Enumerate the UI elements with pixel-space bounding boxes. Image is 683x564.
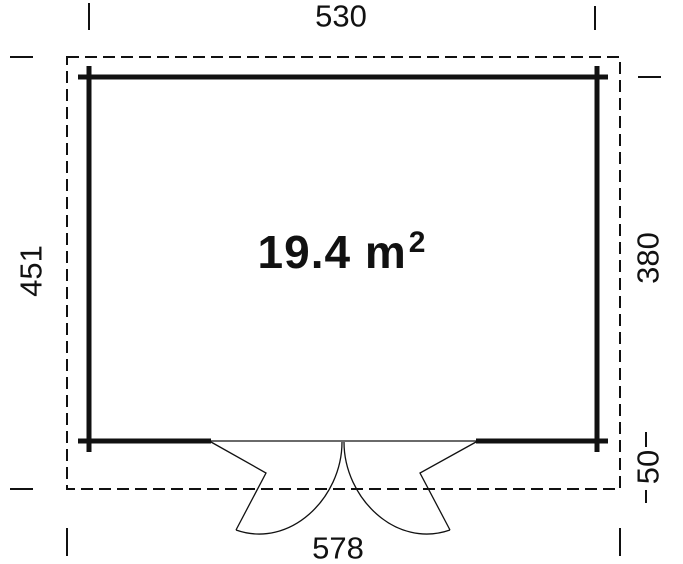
door-right-leaf [420,442,476,530]
area-value: 19.4 m [258,226,407,278]
dimension-ticks [10,3,661,556]
door-left-leaf [211,442,266,530]
floor-plan-canvas: 530 451 380 50 578 19.4 m2 [0,0,683,564]
dimension-right-overhang: 50 [633,450,664,484]
dimension-left-depth: 451 [16,245,47,297]
dimension-bottom-width: 578 [312,533,364,564]
dimension-right-depth: 380 [633,232,664,284]
dimension-top-width: 530 [315,1,367,32]
floor-plan-drawing [0,0,683,564]
area-label: 19.4 m2 [258,225,427,279]
area-superscript: 2 [409,226,427,259]
